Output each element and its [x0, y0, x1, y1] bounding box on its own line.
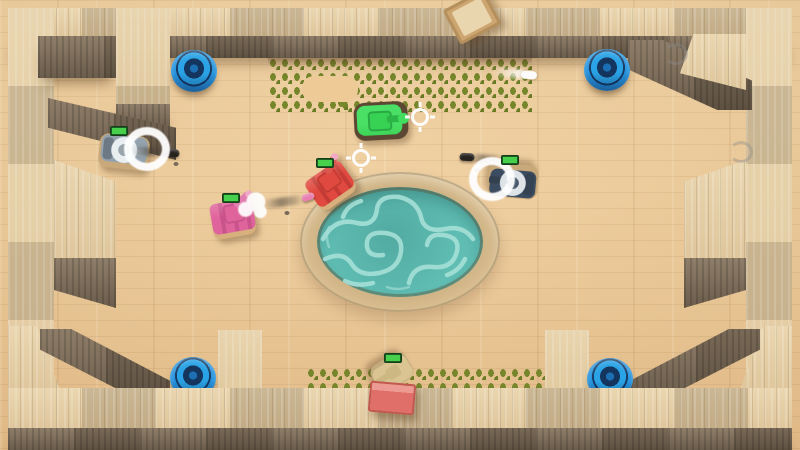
debris — [285, 211, 290, 215]
bullet-white — [521, 70, 538, 79]
muzzle-smoke — [124, 127, 170, 171]
smoke-wisp — [664, 43, 688, 65]
game-arena — [0, 0, 800, 450]
crosshair-cursor[interactable] — [404, 101, 436, 133]
tank-barrel — [387, 115, 402, 123]
health-bar — [501, 155, 519, 165]
crosshair-cursor[interactable] — [345, 142, 377, 174]
wall-tl-deep-face — [38, 36, 116, 78]
grass-strip-bottom — [306, 366, 546, 390]
wall-tl-stub — [116, 8, 170, 104]
muzzle-smoke — [236, 192, 268, 220]
smoke-trail — [262, 195, 305, 210]
wall-bottom-stub-right — [545, 330, 589, 390]
water-caustics — [317, 187, 483, 297]
crate-red — [368, 381, 417, 416]
tank-green — [353, 101, 409, 142]
wall-mid-left-block — [54, 160, 116, 258]
wall-mid-right-block — [684, 160, 746, 258]
wall-mid-right-face — [684, 258, 746, 308]
health-bar — [110, 126, 128, 136]
bullet-pink — [301, 192, 316, 203]
health-bar — [384, 353, 402, 363]
health-bar — [222, 193, 240, 203]
puck-top-right — [584, 49, 630, 91]
bullet-black — [459, 153, 474, 162]
puck-top-left — [171, 50, 217, 92]
wall-bottom-stub-left — [218, 330, 262, 390]
pool-water — [317, 187, 483, 297]
debris — [174, 162, 179, 166]
smoke-wisp — [729, 141, 753, 163]
wall-bottom-face — [8, 428, 792, 450]
health-bar — [316, 158, 334, 168]
wall-mid-left-face — [54, 258, 116, 308]
grass-worn-patch — [302, 76, 358, 102]
